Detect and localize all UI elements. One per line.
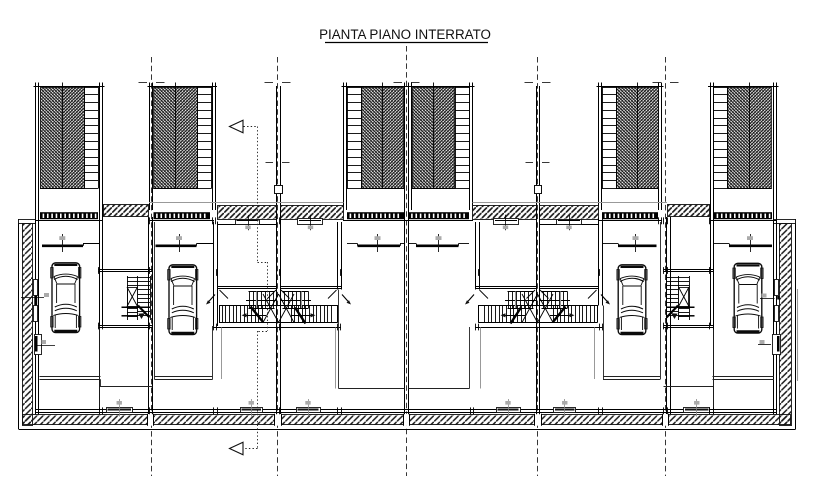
- svg-text:PIANTA PIANO INTERRATO: PIANTA PIANO INTERRATO: [319, 27, 491, 42]
